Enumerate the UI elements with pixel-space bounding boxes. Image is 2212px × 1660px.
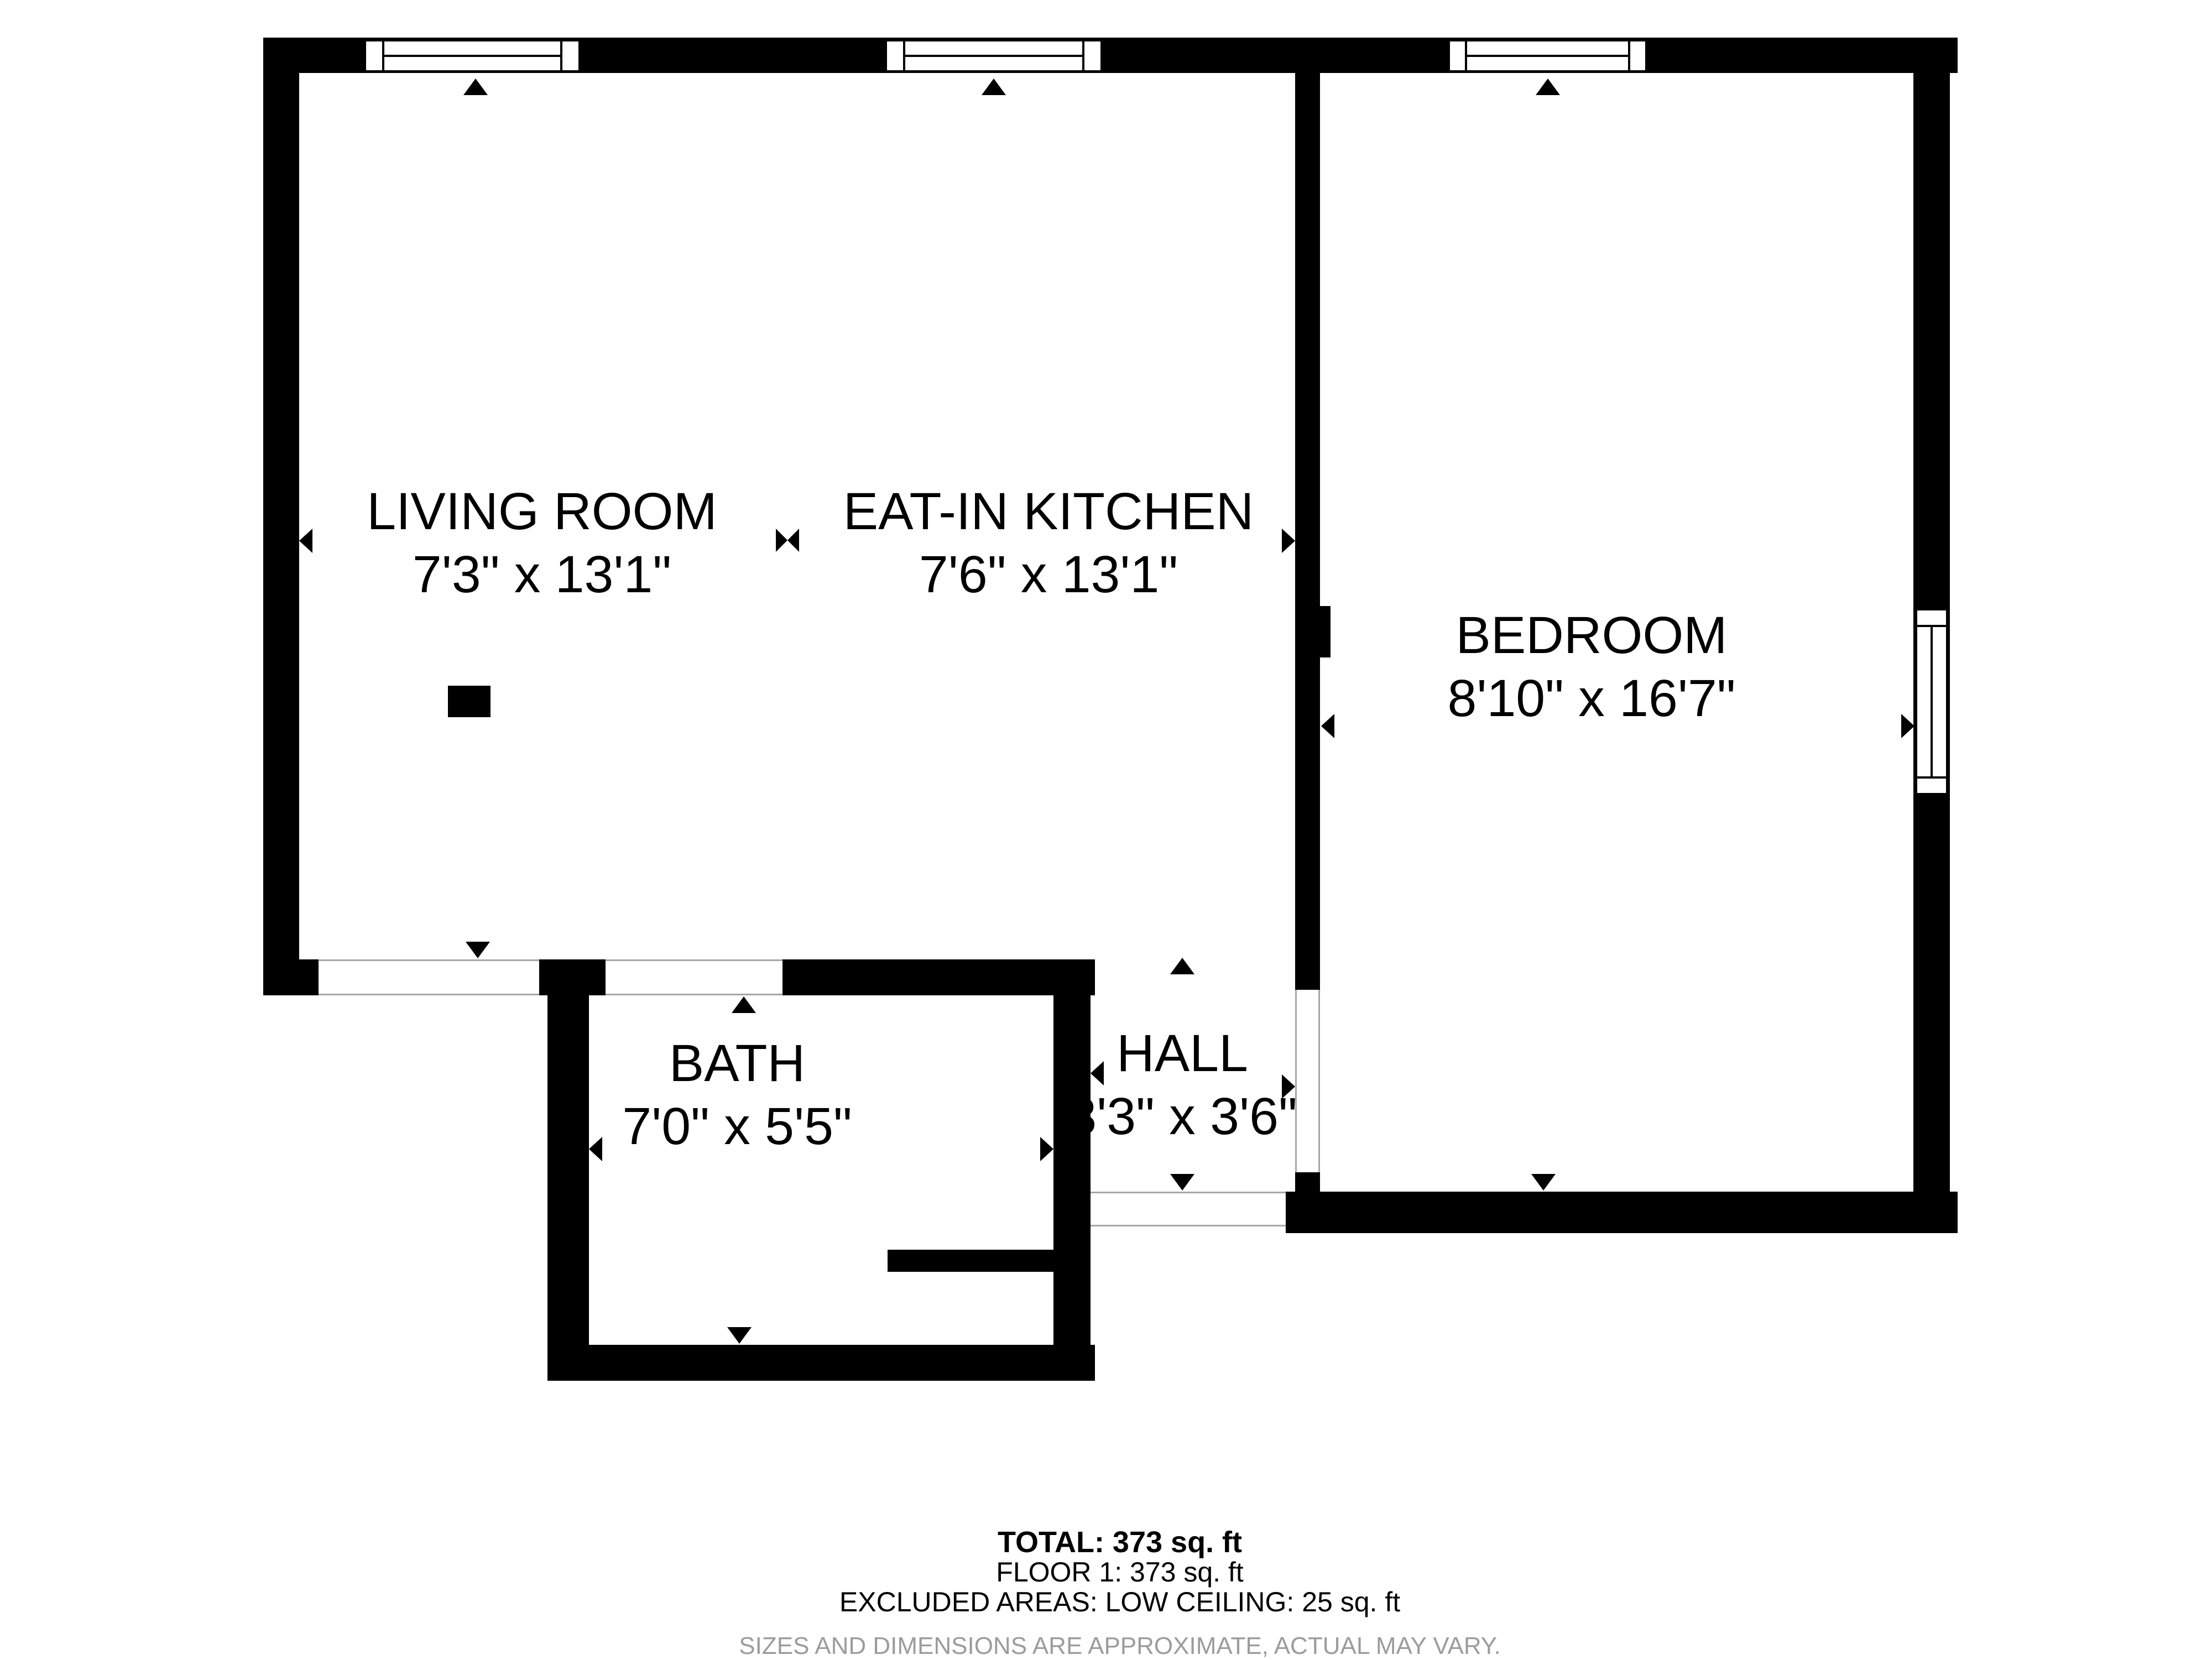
room-name: LIVING ROOM [367, 480, 717, 543]
wall-left [263, 38, 299, 995]
wall-living-bottom-left-segment [263, 959, 319, 995]
room-name: BEDROOM [1447, 604, 1735, 667]
room-label-bath: BATH 7'0" x 5'5" [622, 1032, 852, 1158]
floor-plan: LIVING ROOM 7'3" x 13'1" EAT-IN KITCHEN … [0, 0, 2212, 1659]
wall-partition-jamb-bump [1320, 606, 1331, 657]
window-jamb-line [1917, 776, 1946, 779]
total-area-text: TOTAL: 373 sq. ft [998, 1525, 1242, 1559]
wall-partition-kitchen-bedroom [1295, 73, 1320, 990]
disclaimer-text: SIZES AND DIMENSIONS ARE APPROXIMATE, AC… [739, 1632, 1500, 1660]
window-arrow-kitchen-icon [982, 79, 1006, 95]
hall-bottom-arrow-icon [1170, 1174, 1194, 1191]
kitchen-right-wall-arrow-icon [1282, 529, 1295, 553]
room-label-kitchen: EAT-IN KITCHEN 7'6" x 13'1" [843, 480, 1254, 606]
wall-bath-left-head [539, 959, 606, 995]
opening-entry-living-room [319, 959, 539, 995]
wall-bath-left [547, 995, 589, 1381]
wall-partition-bottom-stub [1295, 1172, 1320, 1192]
bath-doorway-arrow-icon [732, 996, 756, 1013]
window-jamb-line [560, 41, 562, 70]
living-room-column-marker [448, 686, 491, 717]
bedroom-door-arrow-icon [1321, 714, 1334, 738]
room-label-bedroom: BEDROOM 8'10" x 16'7" [1447, 604, 1735, 730]
bedroom-bottom-arrow-icon [1531, 1174, 1556, 1191]
window-midline [384, 55, 560, 57]
window-midline [1467, 55, 1628, 57]
room-dims: 3'3" x 3'6" [1067, 1085, 1297, 1148]
window-jamb-line [1628, 41, 1630, 70]
room-dims: 7'0" x 5'5" [622, 1095, 852, 1158]
window-bedroom-right [1914, 608, 1949, 796]
window-midline [905, 55, 1082, 57]
excluded-area-text: EXCLUDED AREAS: LOW CEILING: 25 sq. ft [839, 1586, 1400, 1618]
room-dims: 7'3" x 13'1" [367, 543, 717, 606]
wall-bath-top [782, 959, 1095, 995]
room-flow-bowtie-icon [776, 529, 787, 552]
bath-left-wall-arrow-icon [589, 1137, 602, 1161]
window-midline [1931, 627, 1933, 776]
bedroom-window-arrow-icon [1901, 714, 1914, 738]
hall-to-bedroom-arrow-icon [1282, 1074, 1295, 1099]
window-arrow-bedroom-icon [1536, 79, 1560, 95]
room-name: BATH [622, 1032, 852, 1095]
window-arrow-living-icon [463, 79, 488, 95]
living-left-wall-arrow-icon [299, 529, 312, 553]
wall-bedroom-bottom [1286, 1192, 1958, 1233]
room-name: EAT-IN KITCHEN [843, 480, 1254, 543]
window-kitchen [884, 39, 1103, 73]
wall-bath-low-ceiling-stub [888, 1250, 1053, 1272]
bath-bottom-arrow-icon [727, 1327, 752, 1344]
entry-opening-arrow-icon [466, 942, 490, 958]
room-dims: 7'6" x 13'1" [843, 543, 1254, 606]
hall-top-arrow-icon [1170, 958, 1194, 974]
room-dims: 8'10" x 16'7" [1447, 667, 1735, 730]
bath-right-wall-arrow-icon [1040, 1137, 1053, 1161]
room-flow-bowtie-icon [787, 529, 799, 552]
opening-bedroom-doorway [1295, 990, 1320, 1172]
room-label-living-room: LIVING ROOM 7'3" x 13'1" [367, 480, 717, 606]
wall-bath-bottom [547, 1345, 1095, 1381]
hall-to-bath-arrow-icon [1091, 1061, 1104, 1085]
opening-hall-bottom [1091, 1192, 1286, 1226]
floor-area-text: FLOOR 1: 373 sq. ft [996, 1556, 1243, 1588]
opening-bath-doorway [606, 959, 782, 995]
window-bedroom-top [1447, 39, 1648, 73]
window-jamb-line [1082, 41, 1084, 70]
window-living-room [363, 39, 581, 73]
wall-bath-right [1053, 995, 1091, 1381]
